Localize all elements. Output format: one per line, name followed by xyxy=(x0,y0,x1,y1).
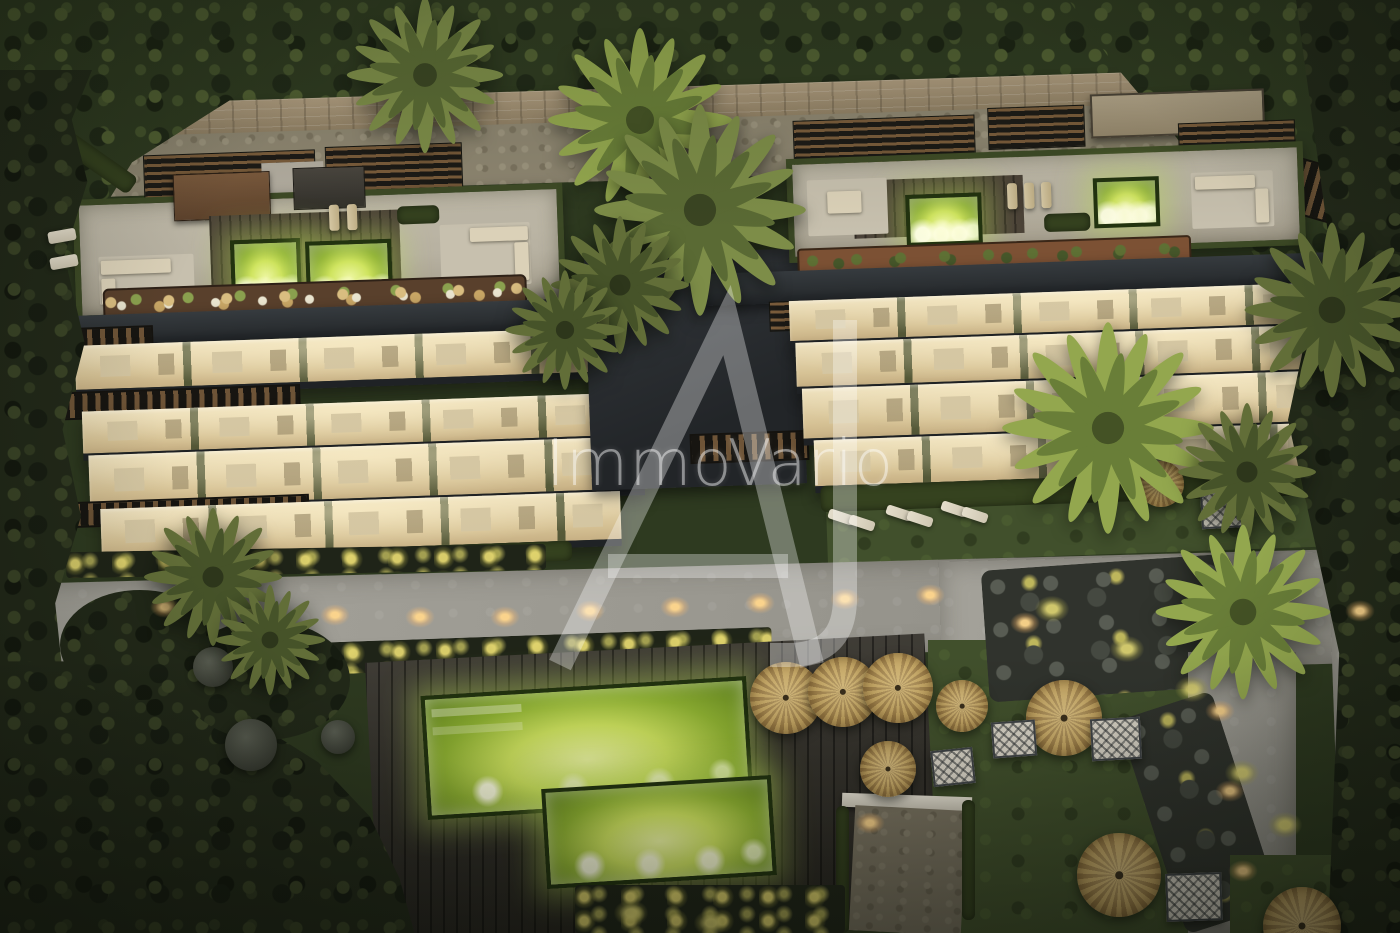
path-light xyxy=(1345,600,1375,622)
uplit-plant xyxy=(1035,596,1069,622)
outdoor-sofa xyxy=(101,258,171,274)
path-light xyxy=(745,592,775,614)
path-light xyxy=(405,606,435,628)
main-pool-lower xyxy=(541,775,777,889)
aerial-render-luxury-apartments: ImmoVario xyxy=(0,0,1400,933)
pool-steps xyxy=(431,704,521,717)
path-light xyxy=(915,584,945,606)
palm-tree xyxy=(340,0,510,160)
outdoor-sofa xyxy=(470,226,528,242)
path-light xyxy=(490,606,520,628)
path-light xyxy=(575,600,605,622)
path-light xyxy=(830,588,860,610)
path-light xyxy=(660,596,690,618)
uplit-plant xyxy=(694,910,728,933)
uplit-plant xyxy=(1110,636,1144,662)
roof-planter-hedge xyxy=(397,205,440,224)
rooftop-pergola xyxy=(987,105,1085,150)
palm-tree xyxy=(1148,517,1338,707)
rooftop-plunge-pool xyxy=(905,192,983,247)
straw-umbrella xyxy=(936,680,988,732)
roof-planter-hedge xyxy=(1044,213,1091,233)
white-cabana-daybed xyxy=(991,720,1037,759)
sun-lounger xyxy=(1041,182,1052,208)
sun-lounger xyxy=(329,205,340,231)
uplit-plant xyxy=(1225,760,1259,786)
sun-lounger xyxy=(1024,182,1035,208)
outdoor-sofa xyxy=(1195,175,1255,190)
palm-tree xyxy=(210,580,330,700)
pool-steps xyxy=(432,722,522,735)
white-cabana-daybed xyxy=(930,747,976,787)
palm-tree xyxy=(1237,215,1400,405)
palm-tree xyxy=(500,265,630,395)
white-cabana-daybed xyxy=(1090,717,1142,762)
straw-umbrella xyxy=(860,741,916,797)
garden-boulder xyxy=(225,719,277,771)
straw-umbrella xyxy=(863,653,933,723)
dining-table xyxy=(827,191,862,214)
uplit-plant xyxy=(1268,812,1302,838)
ramp-hedge-wall xyxy=(962,800,975,920)
uplit-plant xyxy=(614,900,648,926)
sun-lounger xyxy=(347,204,358,230)
path-light xyxy=(855,812,885,834)
sun-lounger xyxy=(1007,183,1018,209)
white-cabana-daybed xyxy=(1165,872,1223,922)
path-light xyxy=(1228,860,1258,882)
garden-boulder xyxy=(321,720,355,754)
rooftop-plunge-pool xyxy=(1093,176,1161,228)
straw-umbrella xyxy=(1077,833,1161,917)
